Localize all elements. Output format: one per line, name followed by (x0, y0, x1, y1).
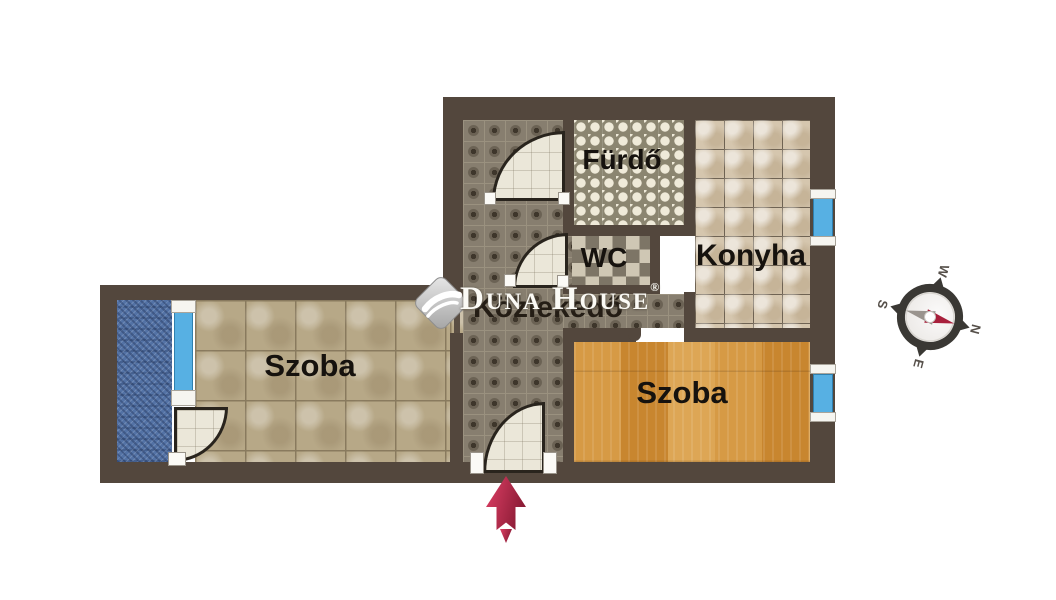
wall-room-left-hall (450, 333, 463, 462)
wall-kitchen-left-upper (684, 120, 695, 230)
compass-label-north: N (967, 323, 984, 336)
dunahouse-brand-text: Duna House® (460, 281, 659, 316)
bathroom-door-jamb-left (484, 192, 496, 205)
wall-mid-horizontal-a (563, 328, 636, 342)
registered-mark: ® (650, 280, 659, 294)
entrance-door-jamb-left (470, 452, 484, 474)
room-left-label: Szoba (248, 350, 372, 381)
kitchen-floor (695, 120, 810, 328)
compass-rose: N E S W (870, 257, 990, 377)
balcony-window-cap-top (171, 300, 196, 313)
wall-kitchen-left-lower (684, 292, 695, 330)
wc-label: WC (556, 244, 652, 272)
entrance-door-jamb-right (543, 452, 557, 474)
room-right-window (813, 374, 833, 413)
kitchen-window (813, 198, 833, 237)
room-right-label: Szoba (620, 377, 744, 408)
compass-label-south: S (874, 298, 891, 311)
brand-name: Duna House (460, 281, 650, 317)
wall-left (100, 285, 117, 483)
bathroom-label: Fürdő (560, 146, 684, 174)
balcony-window-cap-bottom (171, 390, 196, 406)
wall-bottom (100, 462, 835, 483)
room-right-window-cap-bottom (810, 412, 836, 422)
kitchen-window-cap-top (810, 189, 836, 199)
compass-label-east: E (910, 358, 927, 371)
wall-top (443, 97, 835, 120)
wall-right (810, 97, 835, 483)
room-right-window-cap-top (810, 364, 836, 374)
wall-mid-horizontal-b (684, 328, 810, 342)
entrance-arrow-icon (480, 474, 532, 546)
bathroom-door-jamb-right (558, 192, 570, 205)
floor-plan: Fürdő WC Konyha Közlekedő Szoba Szoba Du… (0, 0, 1056, 600)
balcony-window (174, 312, 193, 391)
wall-upper-left (443, 97, 463, 300)
balcony-door-jamb-bottom (168, 452, 186, 466)
wall-bathroom-bottom (563, 225, 695, 236)
compass-label-west: W (934, 263, 952, 279)
wall-hall-room-right (563, 342, 574, 462)
kitchen-window-cap-bottom (810, 236, 836, 246)
balcony-floor (117, 300, 172, 462)
kitchen-label: Konyha (689, 241, 813, 271)
door-hinge-nub (628, 328, 641, 341)
